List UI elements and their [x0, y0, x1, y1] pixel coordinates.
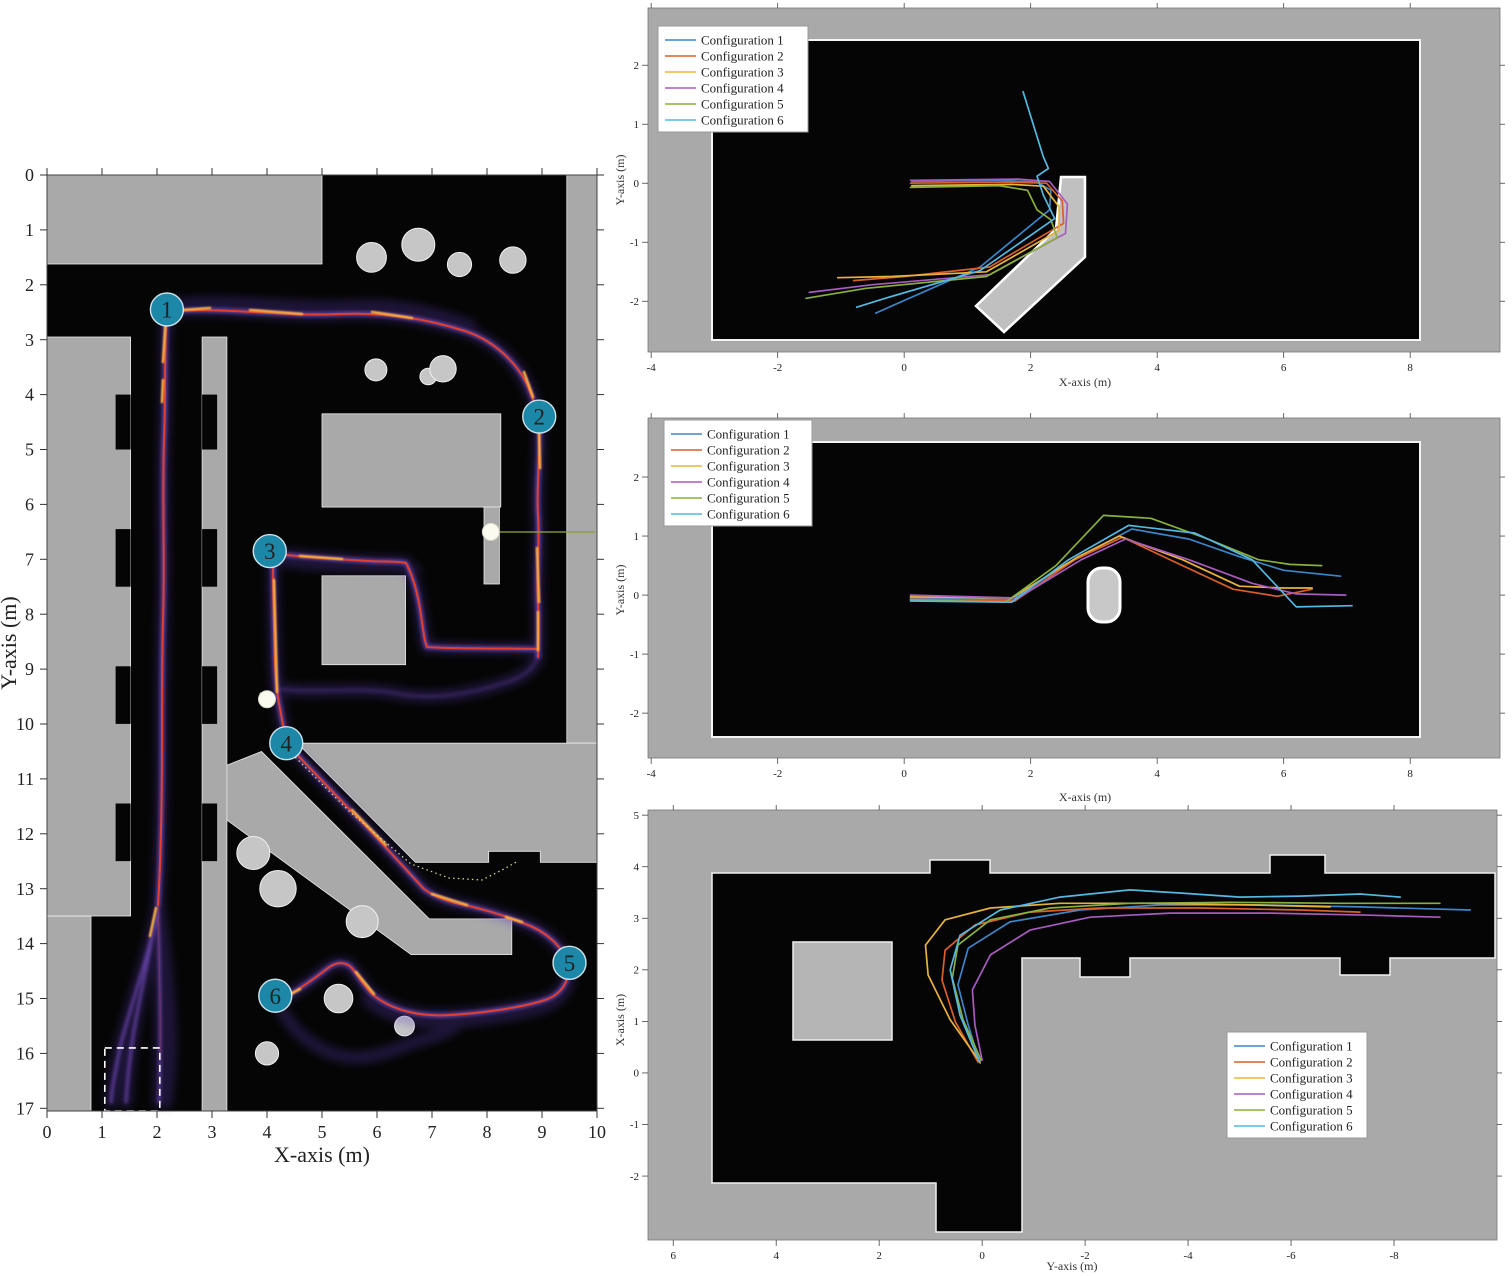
- tick-label: 9: [25, 659, 34, 679]
- waypoint-number: 4: [281, 731, 293, 756]
- legend-label: Configuration 4: [1270, 1086, 1353, 1101]
- figure-svg: X-axis (m) Y-axis (m) 012345678910012345…: [0, 0, 1512, 1276]
- legend-label: Configuration 6: [701, 112, 784, 127]
- legend-middle: Configuration 1Configuration 2Configurat…: [664, 420, 812, 526]
- tick-label: 9: [538, 1122, 547, 1142]
- waypoint-number: 5: [564, 951, 576, 976]
- panel-middle-xaxis-label: X-axis (m): [1059, 790, 1111, 804]
- tick-label: 4: [1154, 768, 1160, 780]
- door-marker: [482, 523, 499, 540]
- tick-label: 11: [17, 769, 34, 789]
- tick-label: 1: [634, 119, 640, 131]
- legend-label: Configuration 4: [707, 474, 790, 489]
- tick-label: 5: [318, 1122, 327, 1142]
- waypoint-badge-1: 1: [150, 293, 183, 326]
- tick-label: 2: [876, 1250, 882, 1262]
- tick-label: 7: [25, 549, 34, 569]
- tick-label: 17: [16, 1098, 34, 1118]
- legend-label: Configuration 2: [701, 48, 784, 63]
- tick-label: 1: [25, 220, 34, 240]
- tick-label: 0: [634, 178, 640, 190]
- tick-label: 4: [1154, 362, 1160, 374]
- left-yaxis-label: Y-axis (m): [0, 596, 21, 689]
- tick-label: 12: [16, 824, 34, 844]
- tick-label: 4: [773, 1250, 779, 1262]
- tick-label: 14: [16, 934, 34, 954]
- tick-label: 6: [1281, 768, 1287, 780]
- tick-label: -4: [647, 768, 657, 780]
- tick-label: 4: [634, 861, 640, 873]
- tick-label: 0: [979, 1250, 985, 1262]
- tick-label: 2: [1028, 768, 1034, 780]
- tick-label: 6: [1281, 362, 1287, 374]
- tick-label: -2: [773, 768, 782, 780]
- tick-label: -2: [630, 708, 639, 720]
- tick-label: 15: [16, 989, 34, 1009]
- legend-label: Configuration 6: [707, 506, 790, 521]
- tick-label: 4: [25, 385, 34, 405]
- tick-label: 3: [634, 913, 640, 925]
- tick-label: 2: [153, 1122, 162, 1142]
- tick-label: 1: [634, 1016, 640, 1028]
- tick-label: 2: [1028, 362, 1034, 374]
- tick-label: 1: [634, 531, 640, 543]
- legend-top: Configuration 1Configuration 2Configurat…: [658, 26, 808, 132]
- tick-label: 0: [901, 362, 907, 374]
- legend-label: Configuration 3: [1270, 1070, 1353, 1085]
- tick-label: 5: [634, 810, 640, 822]
- panel-middle-room: [712, 442, 1420, 737]
- tick-label: -1: [630, 1119, 639, 1131]
- legend-label: Configuration 6: [1270, 1118, 1353, 1133]
- tick-label: 2: [634, 965, 640, 977]
- tick-label: 6: [25, 495, 34, 515]
- waypoint-badge-4: 4: [270, 727, 303, 760]
- tick-label: 6: [373, 1122, 382, 1142]
- waypoint-number: 6: [270, 984, 282, 1009]
- tick-label: 13: [16, 879, 34, 899]
- tick-label: 8: [1407, 768, 1413, 780]
- legend-label: Configuration 2: [1270, 1054, 1353, 1069]
- waypoint-badge-2: 2: [523, 400, 556, 433]
- panel-top-xaxis-label: X-axis (m): [1059, 375, 1111, 389]
- panel-bottom-block: [793, 942, 892, 1040]
- legend-label: Configuration 4: [701, 80, 784, 95]
- figure-canvas: X-axis (m) Y-axis (m) 012345678910012345…: [0, 0, 1512, 1276]
- legend-label: Configuration 5: [701, 96, 784, 111]
- waypoint-number: 3: [264, 539, 276, 564]
- tick-label: 3: [208, 1122, 217, 1142]
- tick-label: 0: [25, 165, 34, 185]
- waypoint-number: 1: [161, 298, 173, 323]
- tick-label: 16: [16, 1044, 34, 1064]
- tick-label: 3: [25, 330, 34, 350]
- tick-label: -2: [630, 296, 639, 308]
- tick-label: 5: [25, 440, 34, 460]
- legend-label: Configuration 1: [701, 32, 784, 47]
- panel-middle-pillar: [1088, 568, 1120, 622]
- tick-label: -2: [1081, 1250, 1090, 1262]
- left-xaxis-label: X-axis (m): [274, 1142, 370, 1167]
- tick-label: -8: [1389, 1250, 1399, 1262]
- tick-label: -2: [630, 1171, 639, 1183]
- waypoint-number: 2: [534, 405, 546, 430]
- tick-label: 10: [588, 1122, 606, 1142]
- tick-label: 0: [43, 1122, 52, 1142]
- tick-label: 7: [428, 1122, 437, 1142]
- legend-label: Configuration 5: [1270, 1102, 1353, 1117]
- legend-bottom: Configuration 1Configuration 2Configurat…: [1227, 1032, 1367, 1138]
- tick-label: 8: [483, 1122, 492, 1142]
- legend-label: Configuration 3: [701, 64, 784, 79]
- tick-label: 8: [1407, 362, 1413, 374]
- panel-bottom-yaxis-label: X-axis (m): [613, 994, 627, 1046]
- tick-label: 0: [901, 768, 907, 780]
- panel-top-yaxis-label: Y-axis (m): [613, 155, 627, 206]
- tick-label: -2: [773, 362, 782, 374]
- waypoint-badge-6: 6: [259, 979, 292, 1012]
- waypoint-badge-3: 3: [253, 535, 286, 568]
- panel-bottom-xaxis-label: Y-axis (m): [1047, 1259, 1098, 1273]
- tick-label: 4: [263, 1122, 272, 1142]
- tick-label: 2: [25, 275, 34, 295]
- tick-label: -6: [1286, 1250, 1296, 1262]
- tick-label: 0: [634, 1068, 640, 1080]
- tick-label: 8: [25, 604, 34, 624]
- tick-label: 6: [670, 1250, 676, 1262]
- tick-label: 2: [634, 60, 640, 72]
- legend-label: Configuration 2: [707, 442, 790, 457]
- door-marker: [259, 691, 276, 708]
- legend-label: Configuration 3: [707, 458, 790, 473]
- tick-label: 2: [634, 472, 640, 484]
- panel-middle-yaxis-label: Y-axis (m): [613, 565, 627, 616]
- tick-label: 0: [634, 590, 640, 602]
- tick-label: 10: [16, 714, 34, 734]
- waypoint-badge-5: 5: [553, 946, 586, 979]
- tick-label: -1: [630, 237, 639, 249]
- legend-label: Configuration 1: [707, 426, 790, 441]
- tick-label: -1: [630, 649, 639, 661]
- tick-label: -4: [647, 362, 657, 374]
- legend-label: Configuration 1: [1270, 1038, 1353, 1053]
- tick-label: -4: [1183, 1250, 1193, 1262]
- left-trajectory-heatmap-panel: X-axis (m) Y-axis (m): [0, 175, 597, 1167]
- tick-label: 1: [98, 1122, 107, 1142]
- legend-label: Configuration 5: [707, 490, 790, 505]
